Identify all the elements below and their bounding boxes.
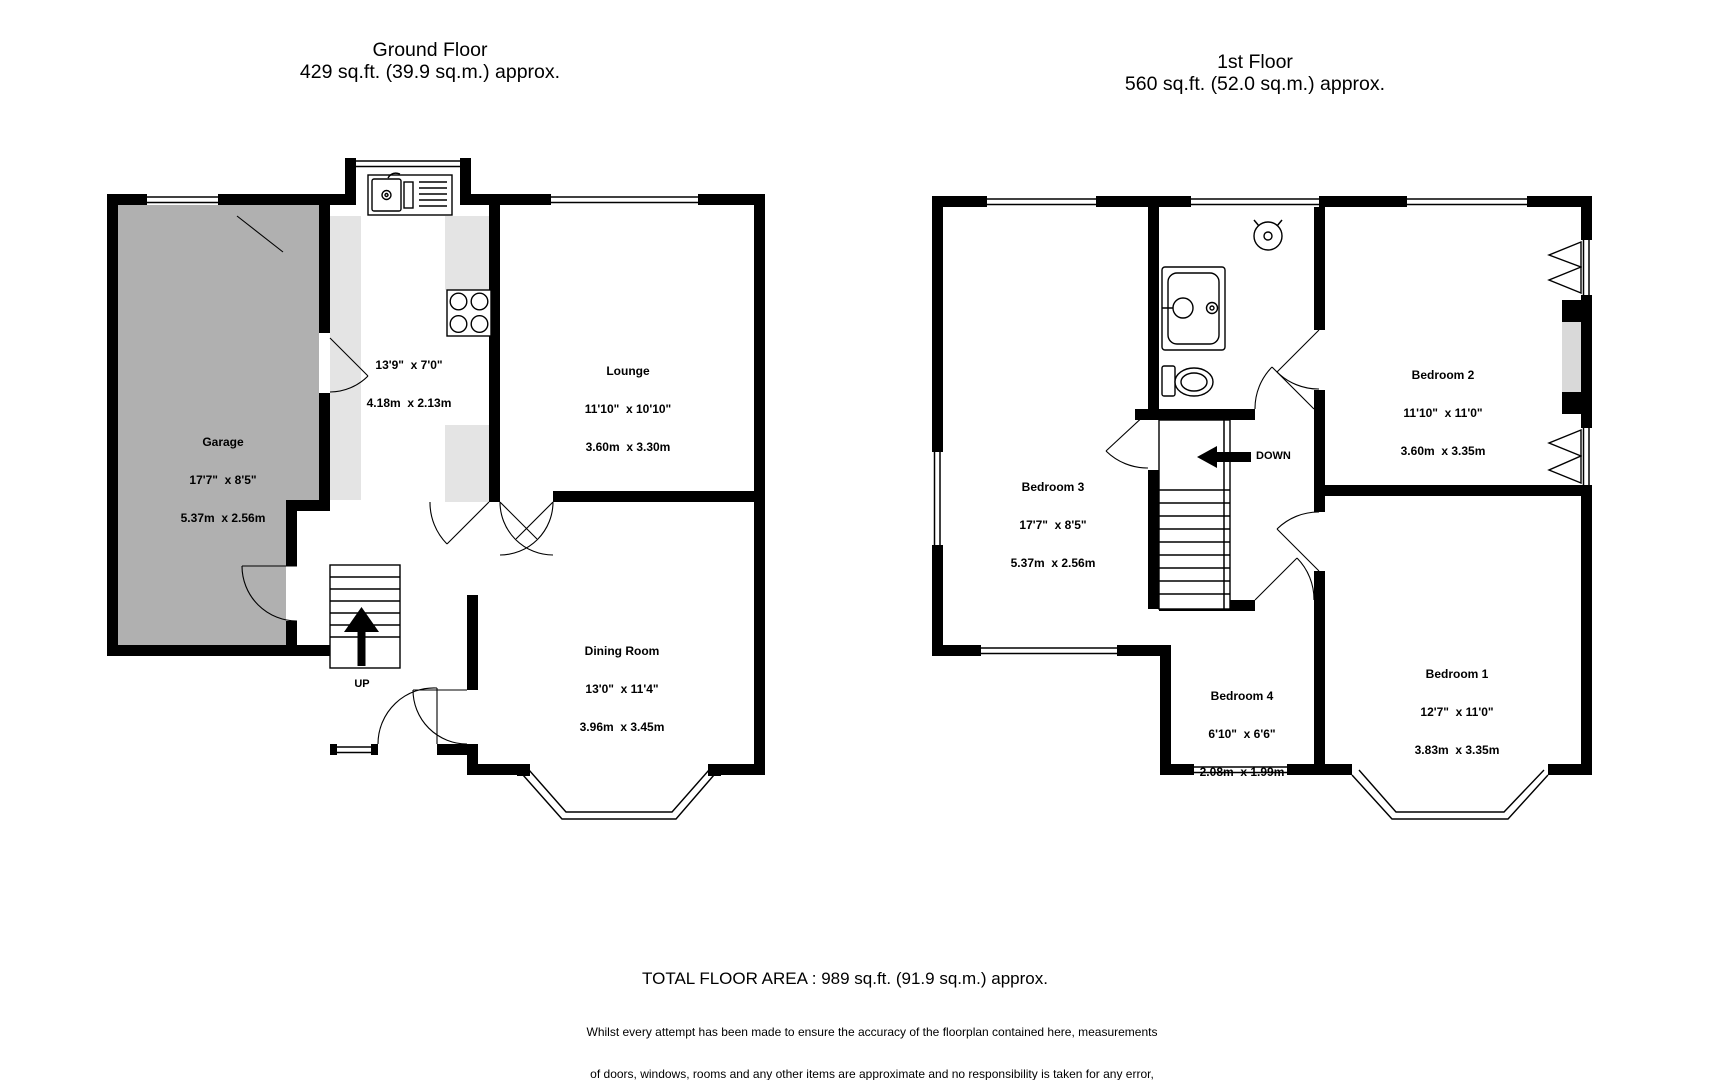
chimney-breast	[1562, 322, 1581, 392]
first-floor-title: 1st Floor 560 sq.ft. (52.0 sq.m.) approx…	[1125, 52, 1385, 95]
down-label: DOWN	[1256, 450, 1291, 462]
stairs-up	[330, 565, 400, 668]
room-label-bedroom-1: Bedroom 1 12'7" x 11'0" 3.83m x 3.35m	[1415, 643, 1500, 782]
total-floor-area: TOTAL FLOOR AREA : 989 sq.ft. (91.9 sq.m…	[642, 969, 1048, 989]
bath-icon	[1162, 267, 1225, 350]
first-floor-area-text: 560 sq.ft. (52.0 sq.m.) approx.	[1125, 74, 1385, 96]
stairs-down	[1159, 420, 1251, 609]
room-label-bedroom-4: Bedroom 4 6'10" x 6'6" 2.08m x 1.99m	[1200, 665, 1285, 804]
ground-floor-area-text: 429 sq.ft. (39.9 sq.m.) approx.	[300, 62, 560, 84]
room-label-garage: Garage 17'7" x 8'5" 5.37m x 2.56m	[181, 411, 266, 550]
up-label: UP	[354, 678, 369, 690]
floorplan-canvas: Ground Floor 429 sq.ft. (39.9 sq.m.) app…	[0, 0, 1710, 1080]
washbasin-icon	[1254, 220, 1282, 250]
disclaimer-line: of doors, windows, rooms and any other i…	[583, 1067, 1160, 1080]
kitchen-sink-icon	[368, 173, 452, 215]
ground-floor-title-text: Ground Floor	[300, 40, 560, 62]
room-label-bedroom-3: Bedroom 3 17'7" x 8'5" 5.37m x 2.56m	[1011, 456, 1096, 595]
ground-floor-title: Ground Floor 429 sq.ft. (39.9 sq.m.) app…	[300, 40, 560, 83]
room-label-dining-room: Dining Room 13'0" x 11'4" 3.96m x 3.45m	[580, 620, 665, 759]
hob-icon	[447, 290, 491, 336]
disclaimer: Whilst every attempt has been made to en…	[583, 996, 1160, 1080]
disclaimer-line: Whilst every attempt has been made to en…	[583, 1025, 1160, 1039]
room-label-kitchen: 13'9" x 7'0" 4.18m x 2.13m	[367, 321, 452, 434]
room-label-bedroom-2: Bedroom 2 11'10" x 11'0" 3.60m x 3.35m	[1401, 344, 1486, 483]
room-label-lounge: Lounge 11'10" x 10'10" 3.60m x 3.30m	[585, 340, 672, 479]
toilet-icon	[1162, 366, 1213, 396]
bay-window-dining	[523, 770, 714, 819]
first-floor-title-text: 1st Floor	[1125, 52, 1385, 74]
